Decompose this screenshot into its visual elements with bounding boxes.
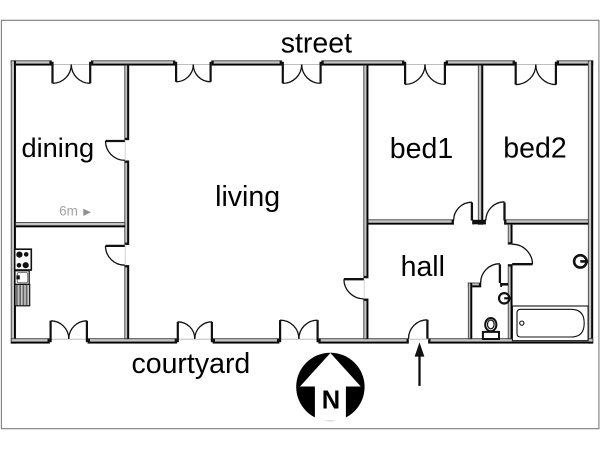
svg-text:dining: dining (22, 132, 95, 163)
svg-text:N: N (322, 387, 340, 415)
svg-text:6m: 6m (59, 204, 78, 219)
svg-text:bed1: bed1 (390, 133, 453, 165)
svg-text:street: street (281, 28, 352, 60)
svg-text:courtyard: courtyard (131, 348, 250, 380)
svg-text:living: living (215, 181, 280, 213)
svg-text:bed2: bed2 (503, 132, 566, 164)
svg-text:hall: hall (401, 251, 445, 283)
